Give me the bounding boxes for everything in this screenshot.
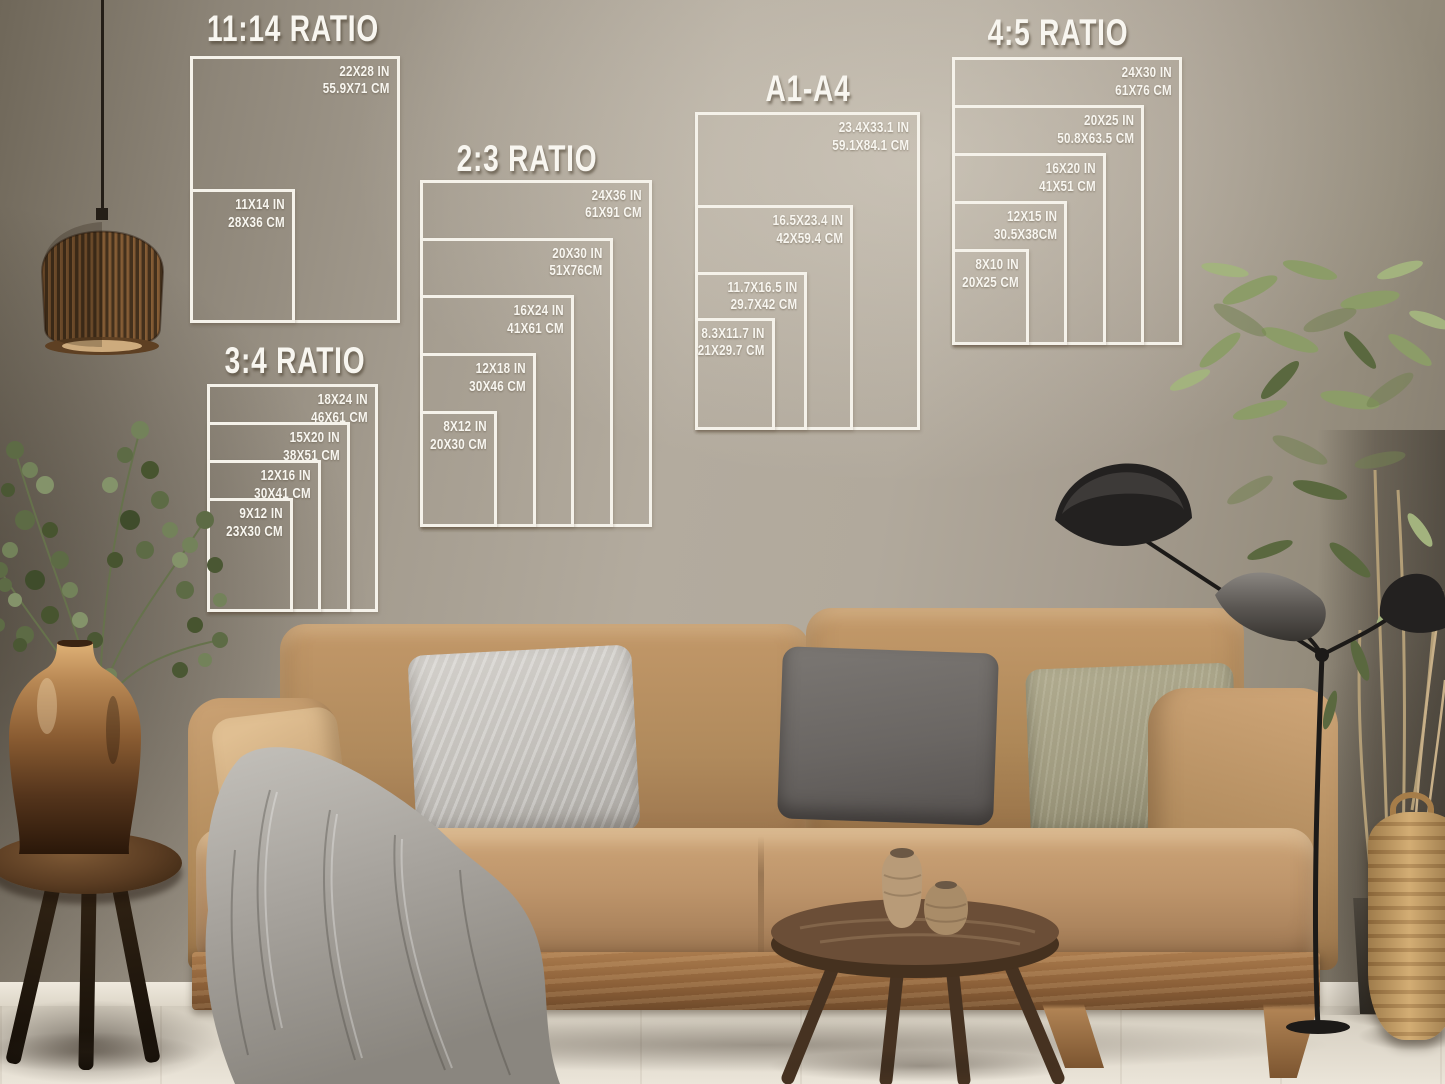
size-label: 8X10 IN20X25 CM: [962, 257, 1019, 292]
size-label-cm: 41X51 CM: [1039, 179, 1096, 197]
living-room-scene: 11:14 RATIO22X28 IN55.9X71 CM11X14 IN28X…: [0, 0, 1445, 1084]
size-label-cm: 30.5X38CM: [994, 227, 1057, 245]
size-label: 20X30 IN51X76CM: [550, 246, 603, 281]
size-label-inches: 11X14 IN: [228, 197, 285, 215]
size-label: 22X28 IN55.9X71 CM: [323, 64, 390, 99]
size-label: 24X30 IN61X76 CM: [1116, 65, 1173, 100]
size-label-inches: 8.3X11.7 IN: [698, 326, 765, 344]
size-label-cm: 42X59.4 CM: [773, 231, 844, 249]
size-label-cm: 59.1X84.1 CM: [833, 138, 910, 156]
size-label: 11X14 IN28X36 CM: [228, 197, 285, 232]
size-box-11-14-ratio-11x14-in: 11X14 IN28X36 CM: [190, 189, 295, 323]
size-label-inches: 12X16 IN: [254, 468, 311, 486]
size-label: 16X24 IN41X61 CM: [508, 303, 565, 338]
size-label: 8.3X11.7 IN21X29.7 CM: [698, 326, 765, 361]
size-label-inches: 18X24 IN: [311, 392, 368, 410]
pendant-lamp-icon: [30, 200, 175, 360]
size-group-title-11-14-ratio: 11:14 RATIO: [207, 8, 379, 50]
size-group-title-3-4-ratio: 3:4 RATIO: [225, 340, 366, 382]
size-label: 16.5X23.4 IN42X59.4 CM: [773, 213, 844, 248]
size-label-cm: 50.8X63.5 CM: [1057, 131, 1134, 149]
size-label-inches: 16X20 IN: [1039, 161, 1096, 179]
size-label-cm: 29.7X42 CM: [727, 297, 797, 315]
size-label-inches: 23.4X33.1 IN: [833, 120, 910, 138]
size-label-cm: 51X76CM: [550, 263, 603, 281]
size-label-inches: 16X24 IN: [508, 303, 565, 321]
size-label-inches: 15X20 IN: [283, 430, 340, 448]
size-box-2-3-ratio-8x12-in: 8X12 IN20X30 CM: [420, 411, 497, 527]
size-label-inches: 20X25 IN: [1057, 113, 1134, 131]
size-label: 12X15 IN30.5X38CM: [994, 209, 1057, 244]
pendant-lamp-cord: [101, 0, 104, 208]
size-label-inches: 22X28 IN: [323, 64, 390, 82]
size-label-cm: 61X76 CM: [1116, 83, 1173, 101]
bronze-vase: [0, 640, 155, 865]
size-group-title-2-3-ratio: 2:3 RATIO: [457, 138, 598, 180]
size-label-cm: 55.9X71 CM: [323, 81, 390, 99]
size-label-inches: 24X36 IN: [585, 188, 642, 206]
size-group-title-4-5-ratio: 4:5 RATIO: [988, 12, 1129, 54]
size-label-inches: 16.5X23.4 IN: [773, 213, 844, 231]
size-box-a1-a4-8.3x11.7-in: 8.3X11.7 IN21X29.7 CM: [695, 318, 775, 430]
size-label-inches: 24X30 IN: [1116, 65, 1173, 83]
size-label: 12X18 IN30X46 CM: [469, 361, 526, 396]
size-label-cm: 61X91 CM: [585, 205, 642, 223]
size-label: 11.7X16.5 IN29.7X42 CM: [727, 280, 797, 315]
size-label-cm: 28X36 CM: [228, 215, 285, 233]
size-label-inches: 20X30 IN: [550, 246, 603, 264]
size-label-cm: 21X29.7 CM: [698, 343, 765, 361]
size-label-cm: 30X46 CM: [469, 379, 526, 397]
size-label: 24X36 IN61X91 CM: [585, 188, 642, 223]
size-label: 23.4X33.1 IN59.1X84.1 CM: [833, 120, 910, 155]
size-label-inches: 12X18 IN: [469, 361, 526, 379]
size-group-title-a1-a4: A1-A4: [765, 68, 850, 110]
size-label-inches: 11.7X16.5 IN: [727, 280, 797, 298]
size-label-inches: 12X15 IN: [994, 209, 1057, 227]
size-label-cm: 20X30 CM: [430, 437, 487, 455]
size-label: 8X12 IN20X30 CM: [430, 419, 487, 454]
table-shadow: [768, 1050, 1078, 1082]
throw-blanket: [180, 730, 600, 1084]
size-box-4-5-ratio-8x10-in: 8X10 IN20X25 CM: [952, 249, 1029, 345]
size-label-cm: 20X25 CM: [962, 275, 1019, 293]
size-label: 16X20 IN41X51 CM: [1039, 161, 1096, 196]
size-label-inches: 8X12 IN: [430, 419, 487, 437]
coffee-table: [740, 820, 1100, 1084]
size-label-cm: 41X61 CM: [508, 321, 565, 339]
size-label: 20X25 IN50.8X63.5 CM: [1057, 113, 1134, 148]
size-label-inches: 8X10 IN: [962, 257, 1019, 275]
